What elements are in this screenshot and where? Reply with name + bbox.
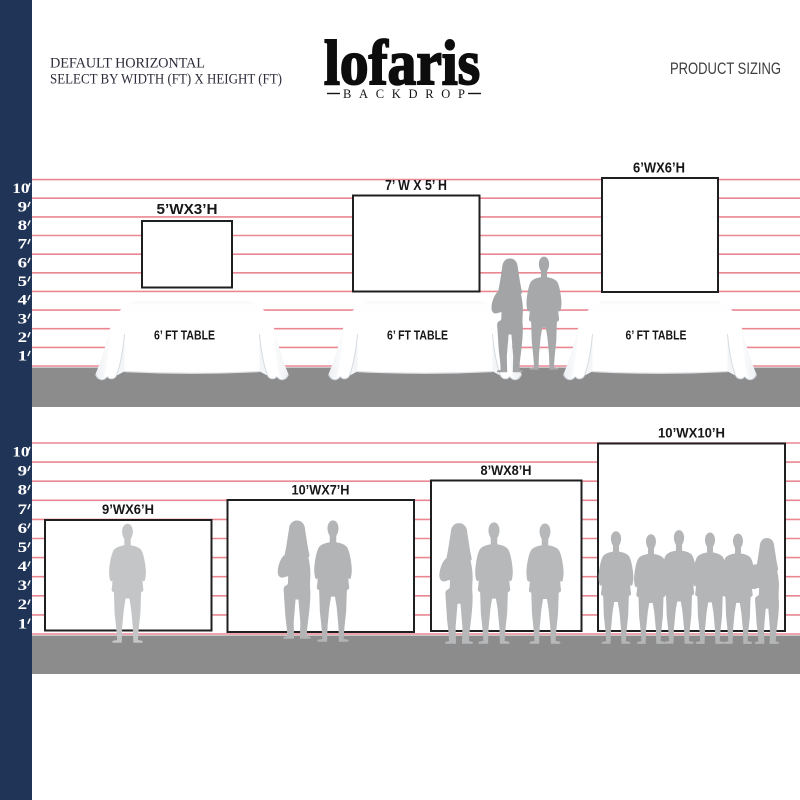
- svg-text:6’ FT TABLE: 6’ FT TABLE: [387, 328, 448, 343]
- svg-text:BACKDROP: BACKDROP: [343, 87, 473, 101]
- svg-text:9: 9: [18, 464, 28, 480]
- svg-text:7: 7: [18, 237, 28, 253]
- svg-text:7: 7: [18, 502, 28, 518]
- svg-text:6: 6: [18, 255, 28, 271]
- svg-text:10: 10: [12, 181, 29, 197]
- svg-text:2: 2: [18, 330, 28, 346]
- svg-text:3: 3: [18, 311, 28, 327]
- svg-text:8’WX8’H: 8’WX8’H: [481, 463, 532, 479]
- svg-text:PRODUCT SIZING: PRODUCT SIZING: [670, 60, 781, 78]
- svg-text:5’WX3’H: 5’WX3’H: [157, 201, 218, 218]
- svg-text:4: 4: [18, 293, 28, 309]
- svg-text:SELECT BY WIDTH (FT) X HEIGHT: SELECT BY WIDTH (FT) X HEIGHT (FT): [50, 72, 282, 88]
- svg-text:6’ FT TABLE: 6’ FT TABLE: [154, 328, 215, 343]
- svg-text:5: 5: [18, 274, 28, 290]
- svg-text:DEFAULT HORIZONTAL: DEFAULT HORIZONTAL: [50, 56, 205, 72]
- svg-text:10’WX10’H: 10’WX10’H: [658, 426, 725, 442]
- svg-text:3: 3: [18, 578, 28, 594]
- svg-text:10’WX7’H: 10’WX7’H: [292, 483, 350, 499]
- svg-text:5: 5: [18, 540, 28, 556]
- svg-text:9’WX6’H: 9’WX6’H: [102, 502, 154, 518]
- svg-text:6’ FT TABLE: 6’ FT TABLE: [626, 328, 687, 343]
- svg-text:6: 6: [18, 521, 28, 537]
- svg-text:6’WX6’H: 6’WX6’H: [633, 160, 685, 177]
- svg-text:1: 1: [18, 349, 28, 365]
- svg-text:7’ W X 5’ H: 7’ W X 5’ H: [385, 177, 447, 194]
- svg-text:9: 9: [18, 200, 28, 216]
- svg-text:1: 1: [18, 616, 28, 632]
- svg-text:8: 8: [18, 218, 28, 234]
- svg-text:2: 2: [18, 597, 28, 613]
- svg-text:4: 4: [18, 559, 28, 575]
- svg-text:8: 8: [18, 483, 28, 499]
- svg-text:10: 10: [12, 444, 29, 460]
